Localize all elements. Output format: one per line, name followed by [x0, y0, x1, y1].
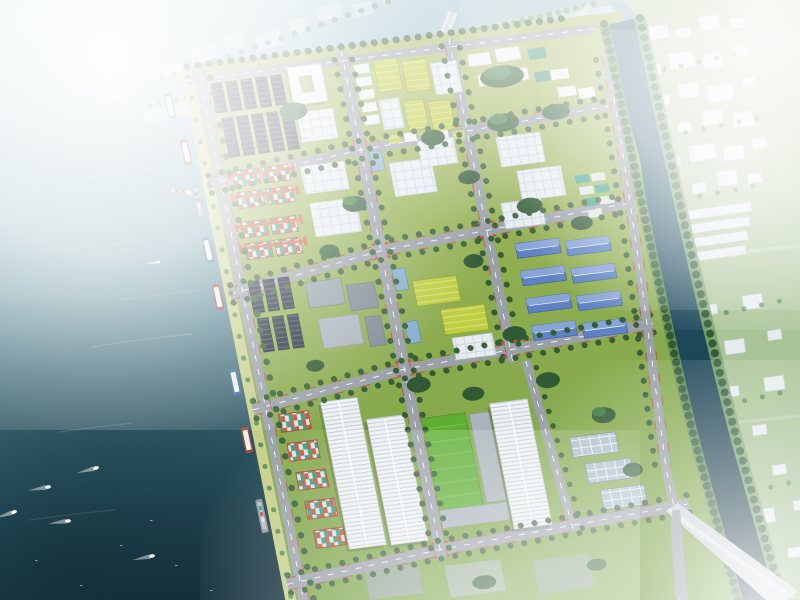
- fog-mid-right: [540, 30, 800, 310]
- city-building: [724, 338, 746, 355]
- aerial-rendering: [0, 0, 800, 600]
- scene-canvas: [0, 0, 800, 600]
- fog-bottom-center: [200, 430, 640, 600]
- city-building: [767, 329, 782, 341]
